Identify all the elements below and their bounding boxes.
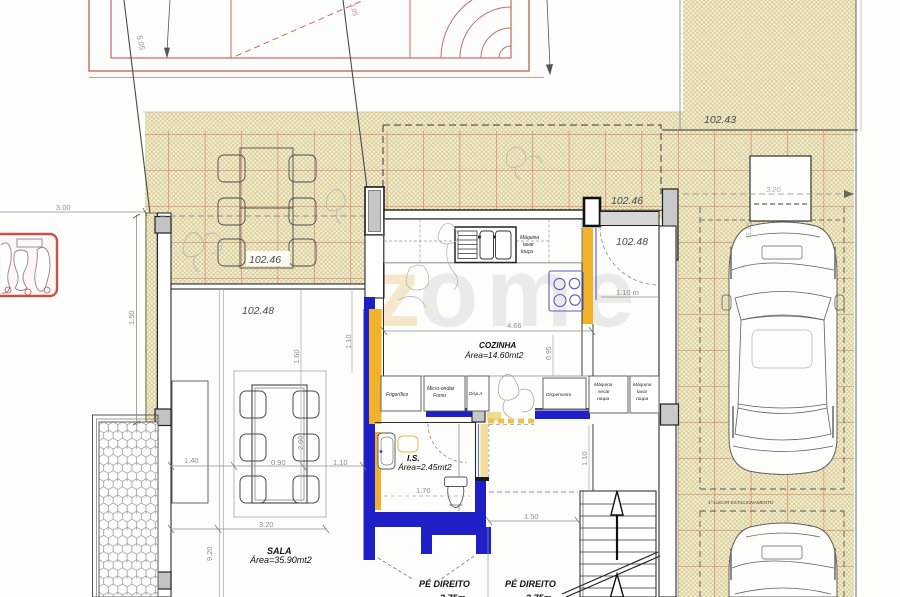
svg-text:Máquina: Máquina <box>633 382 652 388</box>
svg-text:COZINHA: COZINHA <box>479 341 516 350</box>
svg-text:Micro-ondas: Micro-ondas <box>427 386 455 392</box>
svg-text:1.10: 1.10 <box>344 334 353 349</box>
svg-text:Área=2.45mt2: Área=2.45mt2 <box>397 462 452 472</box>
svg-text:1.10: 1.10 <box>333 458 348 467</box>
svg-text:Área=35.90mt2: Área=35.90mt2 <box>249 555 312 565</box>
svg-text:2.00: 2.00 <box>296 435 305 450</box>
svg-text:1.50: 1.50 <box>524 512 539 521</box>
svg-text:roupa: roupa <box>636 396 649 402</box>
svg-text:1.10: 1.10 <box>746 222 753 236</box>
svg-text:lavar: lavar <box>637 389 648 395</box>
svg-text:102.46: 102.46 <box>611 195 643 207</box>
svg-text:PÉ DIREITO: PÉ DIREITO <box>419 579 470 589</box>
svg-text:3.20: 3.20 <box>259 520 274 529</box>
svg-text:Máquina: Máquina <box>520 235 539 241</box>
svg-text:Área=14.60mt2: Área=14.60mt2 <box>464 350 524 360</box>
svg-text:0.95: 0.95 <box>546 346 553 360</box>
svg-text:Forno: Forno <box>433 393 446 399</box>
svg-text:secar: secar <box>598 389 610 395</box>
svg-text:1.10: 1.10 <box>580 451 589 466</box>
svg-text:102.43: 102.43 <box>704 114 736 126</box>
svg-text:2.75m: 2.75m <box>525 593 552 597</box>
svg-text:louça: louça <box>521 249 533 255</box>
svg-text:4.66: 4.66 <box>507 321 522 330</box>
svg-text:102.48: 102.48 <box>242 305 274 317</box>
svg-text:102.46: 102.46 <box>249 254 281 266</box>
svg-text:1.10 m: 1.10 m <box>616 288 639 297</box>
svg-text:1.50: 1.50 <box>127 310 136 325</box>
svg-text:Dispenseira: Dispenseira <box>546 392 572 398</box>
svg-text:Máquina: Máquina <box>594 382 613 388</box>
svg-text:2.75m: 2.75m <box>439 593 466 597</box>
svg-text:3.00: 3.00 <box>56 203 71 212</box>
svg-text:3.20: 3.20 <box>766 185 781 194</box>
svg-text:9.20: 9.20 <box>205 546 214 561</box>
svg-text:roupa: roupa <box>597 396 610 402</box>
svg-text:0.90: 0.90 <box>271 458 286 467</box>
svg-text:lavar: lavar <box>523 242 534 248</box>
svg-text:PÉ DIREITO: PÉ DIREITO <box>505 579 556 589</box>
svg-text:1.60: 1.60 <box>292 349 301 364</box>
svg-text:1.40: 1.40 <box>184 456 199 465</box>
svg-text:1.70: 1.70 <box>416 486 431 495</box>
svg-text:Disp.A: Disp.A <box>469 391 483 396</box>
svg-text:1º LUGAR ESTACIONAMENTO: 1º LUGAR ESTACIONAMENTO <box>708 500 774 505</box>
svg-text:Frigorífico: Frigorífico <box>386 392 408 398</box>
